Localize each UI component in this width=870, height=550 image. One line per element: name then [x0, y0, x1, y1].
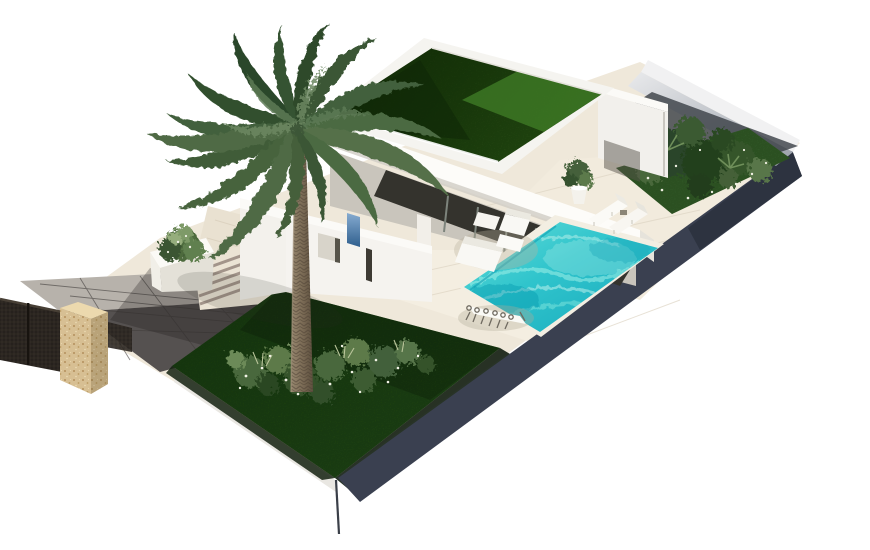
door-slot — [366, 248, 372, 282]
villa-render — [0, 0, 870, 550]
lounger-side-table — [620, 210, 627, 215]
dining-table-set — [458, 305, 534, 331]
stone-gate-pillar — [60, 302, 108, 394]
blue-wall-panel — [347, 213, 360, 247]
render-canvas — [0, 0, 870, 550]
